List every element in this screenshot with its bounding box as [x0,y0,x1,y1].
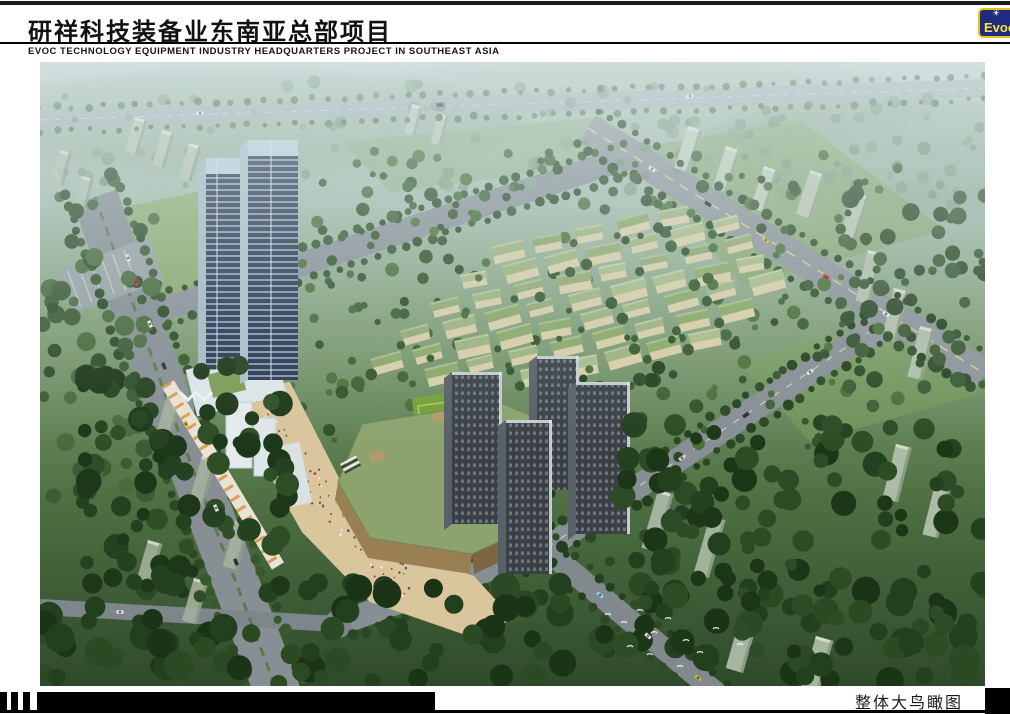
tree [764,465,781,482]
residential-tower-side [444,372,452,530]
tree [608,187,618,197]
tree [957,614,977,634]
street-tree [677,109,682,114]
car-glass [119,611,122,614]
tree [399,309,410,320]
street-tree [535,197,545,207]
tree [78,452,93,467]
tree [760,147,770,157]
street-tree [756,81,763,88]
street-tree [149,125,154,130]
street-tree [165,124,170,129]
tree [652,361,665,374]
street-tree [277,122,281,126]
tree [101,152,114,165]
tree [482,258,491,267]
street-tree [808,386,814,392]
tree [962,140,969,147]
street-tree [149,269,158,278]
tree [750,559,765,574]
street-tree [412,237,422,247]
street-tree [644,186,653,195]
street-tree [720,405,731,416]
street-tree [606,583,615,592]
street-tree [68,106,73,111]
tree [953,191,967,205]
street-tree [134,126,139,131]
tree [830,612,844,626]
tree [867,400,880,413]
tree [752,145,762,155]
footer-bottom-rule [0,710,1010,714]
tree [137,508,150,521]
tree [362,186,374,198]
tree [95,420,108,433]
street-tree [869,77,875,83]
tree [509,185,516,192]
tree [849,276,861,288]
tree [347,270,355,278]
tree [749,643,764,658]
tree [263,433,283,453]
street-tree [703,458,710,465]
street-tree [787,276,794,283]
street-tree [919,100,923,104]
tree [950,645,980,675]
tree [928,266,937,275]
street-tree [821,249,828,256]
tree [689,399,703,413]
tree [814,584,826,596]
tree [217,357,236,376]
tree [353,159,362,168]
tree [959,297,970,308]
tree [654,199,663,208]
tree [319,179,327,187]
tree [689,116,700,127]
tree [323,424,335,436]
tree [792,594,814,616]
tree [176,514,192,530]
tree [831,491,856,516]
street-tree [670,672,678,680]
street-tree [484,115,490,121]
street-tree [454,115,461,122]
tree [917,142,931,156]
tree [637,595,652,610]
tree [183,182,189,188]
tree [782,159,792,169]
tree [373,579,402,608]
tree [537,157,544,164]
tree [933,254,946,267]
tree [898,324,911,337]
tree [195,637,216,658]
street-tree [600,614,610,624]
street-tree [614,110,622,118]
street-tree [642,496,653,507]
street-tree [147,101,153,107]
tree [545,180,553,188]
tree [936,180,945,189]
tree [891,391,905,405]
tree [139,458,153,472]
tree [928,190,937,199]
tree [452,201,459,208]
tree [865,141,877,153]
street-tree [883,331,894,342]
street-tree [532,113,538,119]
tree [338,233,346,241]
street-tree [900,100,907,107]
street-tree [54,126,61,133]
tree [423,106,429,112]
street-tree [437,90,443,96]
car [116,610,123,614]
street-tree [771,82,775,86]
street-tree [788,104,794,110]
street-tree [428,234,438,244]
aerial-rendering [40,62,985,686]
street-tree [181,124,186,129]
street-tree [405,208,412,215]
street-tree [814,343,820,349]
tree [470,210,481,221]
tree [578,197,590,209]
tree [546,193,553,200]
tree [84,504,98,518]
tree [950,372,966,388]
street-tree [588,603,597,612]
street-tree [841,361,851,371]
tree [725,173,734,182]
tree [404,194,413,203]
street-tree [347,260,354,267]
street-tree [607,145,614,152]
street-tree [277,98,283,104]
street-tree [722,83,729,90]
tree [757,176,765,184]
tree [518,184,525,191]
tree [422,654,440,672]
tree [764,182,773,191]
tree [400,297,409,306]
tree [834,160,841,167]
street-tree [632,130,639,137]
tree [643,527,667,551]
street-tree [855,270,862,277]
aerial-rendering-canvas [40,62,985,686]
street-tree [534,88,539,93]
street-tree [366,223,374,231]
street-tree [526,170,533,177]
tree [69,297,79,307]
tree [60,190,71,201]
tree [121,458,132,469]
street-tree [619,593,626,600]
street-tree [211,600,219,608]
tree [696,180,709,193]
street-tree [732,399,741,408]
street-tree [102,129,107,134]
street-tree [822,80,828,86]
street-tree [356,94,363,101]
street-tree [284,637,292,645]
tree [87,199,98,210]
tree [917,172,929,184]
tree [124,375,138,389]
street-tree [787,360,798,371]
street-tree [583,146,593,156]
tree [642,172,649,179]
tree [854,365,865,376]
tree [429,227,438,236]
tree [682,643,694,655]
tree [822,415,843,436]
tree [95,434,112,451]
tree [579,375,587,383]
tree [103,568,122,587]
street-tree [499,175,509,185]
street-tree [445,195,453,203]
street-tree [831,370,838,377]
street-tree [373,118,379,124]
tree [938,494,955,511]
street-tree [949,100,954,105]
street-tree [694,108,700,114]
tree [787,306,801,320]
tree [665,201,673,209]
tree [685,524,700,539]
tree [207,127,215,135]
tree [970,144,977,151]
tree [242,624,260,642]
tree [878,462,897,481]
tree [301,643,320,662]
street-tree [566,111,572,117]
street-tree [612,86,618,92]
street-tree [746,423,756,433]
street-tree [726,439,736,449]
tree [945,246,960,261]
street-tree [893,341,904,352]
tree [916,667,933,684]
tree [387,211,399,223]
tree [438,236,448,246]
tree [644,581,659,596]
tree [463,624,484,645]
street-tree [595,574,604,583]
tree [64,234,79,249]
street-tree [643,107,649,113]
tree [321,617,345,641]
tree [346,575,373,602]
street-tree [173,342,180,349]
tree [442,180,453,191]
street-tree [758,103,764,109]
street-tree [801,352,811,362]
tree [48,344,62,358]
tree [370,171,376,177]
tree [64,391,77,404]
street-tree [511,172,520,181]
street-tree [493,211,501,219]
tree [314,669,330,685]
tree [553,164,563,174]
street-tree [337,266,344,273]
tree [526,177,537,188]
tree [114,316,134,336]
tree [839,321,845,327]
tree [866,371,883,388]
tree [111,425,126,440]
street-tree [516,115,522,121]
tree [149,429,169,449]
tree [646,448,669,471]
tree [48,669,65,686]
tree [118,478,135,495]
tree [92,146,103,157]
tree [770,318,778,326]
tree [668,336,676,344]
tree [82,573,102,593]
tree [595,625,614,644]
tree [740,531,756,547]
street-tree [227,100,233,106]
tree [878,511,894,527]
tree [69,203,85,219]
tree [402,181,413,192]
street-tree [790,80,797,87]
tree [733,622,752,641]
tree [835,297,847,309]
tree [892,135,903,146]
tree [880,229,896,245]
tree [207,452,230,475]
street-tree [728,105,733,110]
page-subtitle: EVOC TECHNOLOGY EQUIPMENT INDUSTRY HEADQ… [28,46,499,57]
street-tree [805,79,811,85]
tree [664,414,686,436]
tree [375,319,381,325]
tree [193,363,210,380]
tree [887,172,894,179]
street-tree [931,99,939,107]
tree [944,164,956,176]
tree [851,333,860,342]
tree [336,386,349,399]
tree [142,609,163,630]
tree [628,552,645,569]
tree [923,114,930,121]
tree [419,250,433,264]
street-tree [617,120,626,129]
tree [475,274,482,281]
tree [797,318,809,330]
tree [78,424,91,437]
tree [717,585,733,601]
tree [814,453,829,468]
office-tower-side [198,158,206,374]
tree [414,80,423,89]
tree [212,434,227,449]
street-tree [714,181,724,191]
title-underline [0,42,1010,44]
tree [809,652,833,676]
tree [803,280,814,291]
tree [860,300,878,318]
tree [813,351,823,361]
footer-bar: 整体大鸟瞰图 [0,686,1010,714]
tree [924,632,949,657]
tree [896,524,908,536]
tree [178,494,201,517]
tree [153,449,167,463]
street-tree [825,336,832,343]
street-tree [804,103,812,111]
tree [133,223,148,238]
tree [757,570,777,590]
tree [263,394,280,411]
tree [860,233,872,245]
street-tree [501,88,507,94]
tree [854,112,865,123]
street-tree [705,412,715,422]
tree [817,277,831,291]
street-tree [206,587,215,596]
tree [629,343,640,354]
tree [262,534,284,556]
tree [785,559,797,571]
tree [549,650,576,677]
tree [946,200,956,210]
tree [768,116,780,128]
tree [905,294,918,307]
tree [417,273,428,284]
tree [818,150,828,160]
street-tree [886,77,892,83]
street-tree [518,90,523,95]
tree [605,557,615,567]
tree [121,271,137,287]
tree [873,323,885,335]
street-tree [547,89,555,97]
street-tree [272,602,281,611]
tree [424,188,438,202]
tree [330,143,339,152]
street-tree [810,288,819,297]
street-tree [914,307,921,314]
tree [630,172,642,184]
street-tree [836,80,842,86]
tree [540,110,547,117]
tree [853,179,863,189]
tree [300,124,307,131]
street-tree [887,101,892,106]
street-tree [644,138,651,145]
tree [613,632,638,657]
street-tree [229,122,236,129]
street-tree [726,190,733,197]
tree [917,565,931,579]
tree [773,371,781,379]
tree [681,247,689,255]
tower-corner-stripe [549,420,552,574]
tree [281,644,301,664]
street-tree [359,118,365,124]
tree [222,527,235,540]
street-tree [213,99,221,107]
